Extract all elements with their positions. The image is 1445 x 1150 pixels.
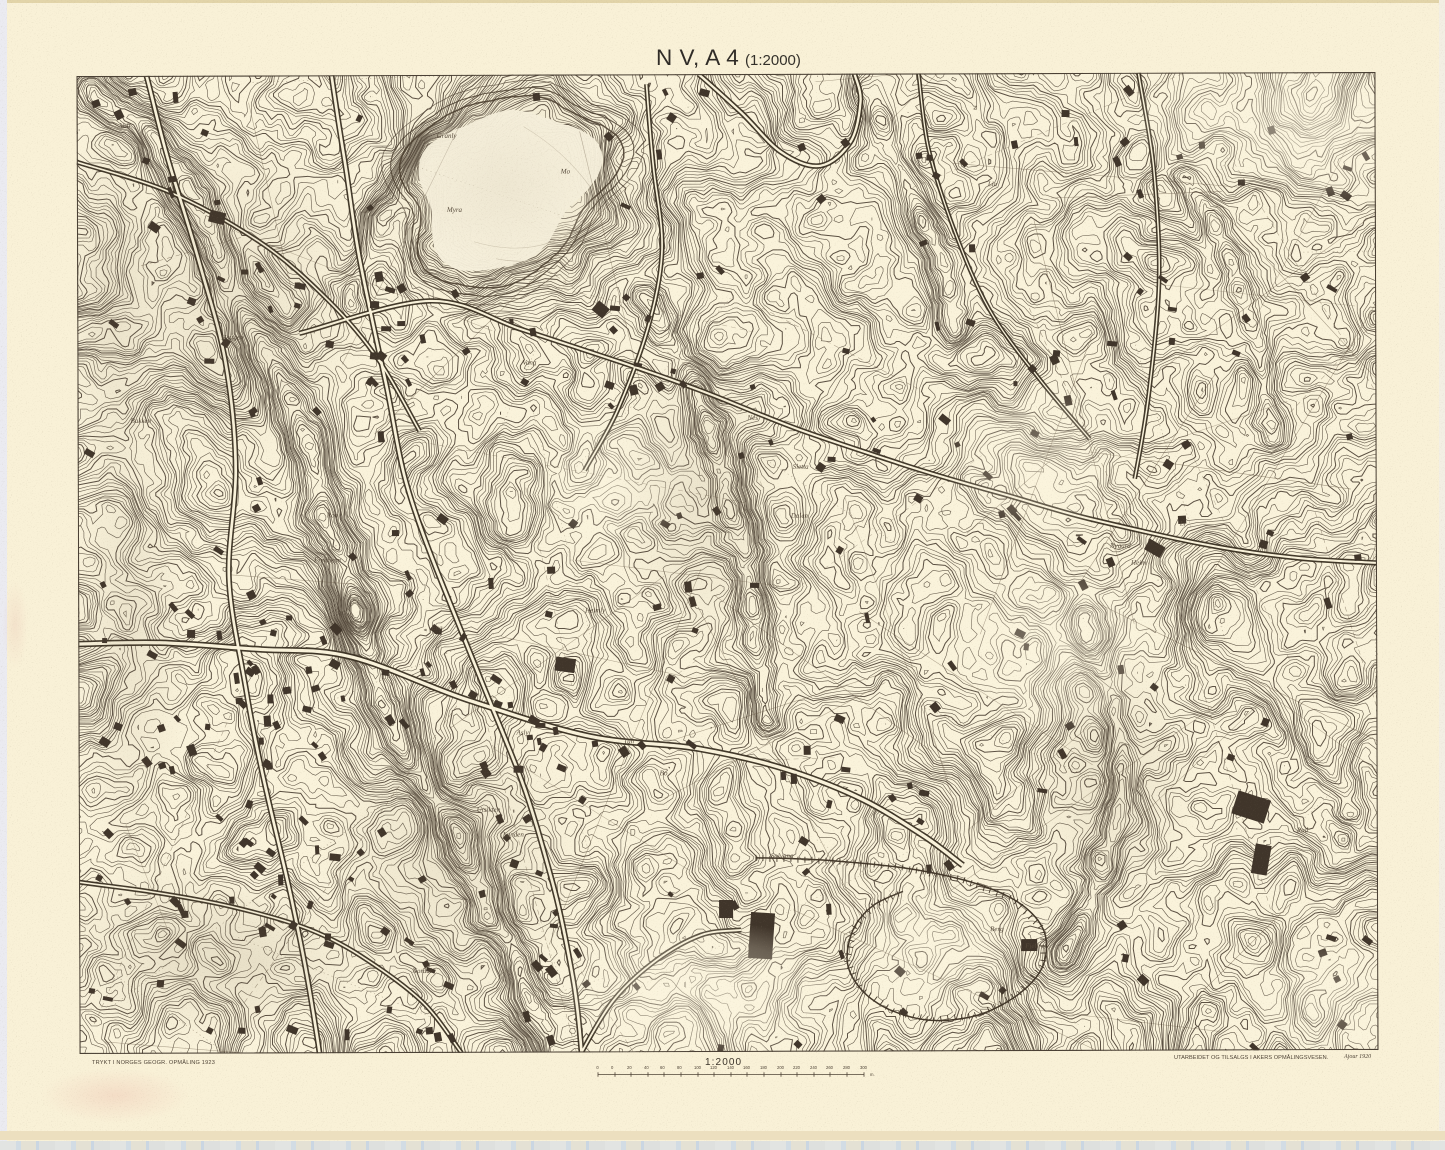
svg-text:Vang: Vang xyxy=(522,359,537,367)
svg-text:m.: m. xyxy=(870,1072,875,1077)
svg-text:Eng: Eng xyxy=(430,624,443,632)
svg-text:Dalen: Dalen xyxy=(790,512,809,520)
svg-text:180: 180 xyxy=(760,1065,768,1070)
svg-text:0: 0 xyxy=(611,1065,614,1070)
svg-text:300: 300 xyxy=(860,1065,868,1070)
svg-text:Solvang: Solvang xyxy=(771,852,794,860)
svg-text:Heimly: Heimly xyxy=(584,606,606,614)
svg-text:Utsikten: Utsikten xyxy=(477,806,501,814)
svg-text:140: 140 xyxy=(727,1065,735,1070)
svg-text:Fjellro: Fjellro xyxy=(1024,942,1045,950)
svg-text:160: 160 xyxy=(743,1065,751,1070)
svg-text:Berg: Berg xyxy=(990,925,1004,933)
svg-text:280: 280 xyxy=(843,1065,851,1070)
svg-text:220: 220 xyxy=(793,1065,801,1070)
svg-text:Voll: Voll xyxy=(120,122,131,130)
svg-text:Granly: Granly xyxy=(437,132,458,140)
svg-text:Li: Li xyxy=(1179,520,1186,528)
svg-text:60: 60 xyxy=(660,1065,665,1070)
svg-text:Myra: Myra xyxy=(446,206,463,214)
svg-text:100: 100 xyxy=(694,1065,702,1070)
svg-text:Rud: Rud xyxy=(1296,826,1309,834)
svg-text:Mo: Mo xyxy=(560,167,571,175)
svg-text:Asly: Asly xyxy=(516,729,530,737)
svg-text:Bakken: Bakken xyxy=(131,417,152,425)
svg-text:Roa: Roa xyxy=(326,511,339,519)
svg-text:20: 20 xyxy=(596,1065,599,1070)
svg-text:120: 120 xyxy=(710,1065,718,1070)
svg-text:260: 260 xyxy=(826,1065,834,1070)
svg-text:Tun: Tun xyxy=(624,737,635,745)
svg-text:Fredheim: Fredheim xyxy=(313,556,341,564)
svg-text:Nes: Nes xyxy=(747,414,759,422)
svg-text:80: 80 xyxy=(677,1065,682,1070)
svg-text:Nordal: Nordal xyxy=(411,967,432,975)
svg-text:Lia: Lia xyxy=(987,180,998,188)
svg-text:Heim: Heim xyxy=(1130,559,1146,567)
svg-text:200: 200 xyxy=(777,1065,785,1070)
svg-text:Haugen: Haugen xyxy=(220,334,244,342)
svg-text:Lunden: Lunden xyxy=(502,831,525,839)
svg-text:Nygard: Nygard xyxy=(1109,542,1131,550)
svg-text:Sletta: Sletta xyxy=(793,463,809,471)
svg-text:Bo: Bo xyxy=(660,769,668,777)
svg-text:40: 40 xyxy=(644,1065,649,1070)
svg-text:20: 20 xyxy=(627,1065,632,1070)
svg-text:240: 240 xyxy=(810,1065,818,1070)
